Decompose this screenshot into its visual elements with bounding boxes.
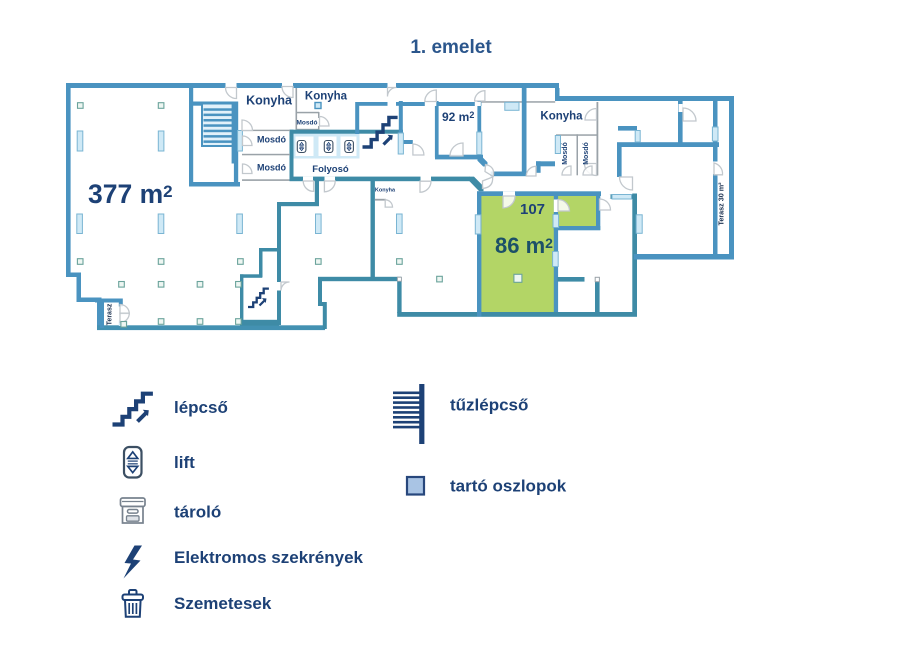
- svg-text:Elektromos szekrények: Elektromos szekrények: [174, 548, 364, 567]
- svg-text:1. emelet: 1. emelet: [410, 37, 492, 58]
- svg-text:tároló: tároló: [174, 503, 221, 522]
- svg-text:tűzlépcső: tűzlépcső: [450, 396, 528, 415]
- svg-text:Mosdó: Mosdó: [583, 142, 590, 165]
- svg-text:Konyha: Konyha: [246, 94, 293, 108]
- svg-text:377 m2: 377 m2: [88, 179, 173, 209]
- svg-text:Konyha: Konyha: [540, 111, 583, 123]
- svg-text:Terasz 30 m²: Terasz 30 m²: [717, 182, 726, 226]
- svg-text:Szemetesek: Szemetesek: [174, 594, 272, 613]
- svg-text:Konyha: Konyha: [375, 188, 396, 194]
- svg-text:Konyha: Konyha: [305, 91, 348, 103]
- svg-text:Terasz: Terasz: [107, 303, 114, 325]
- svg-text:86 m2: 86 m2: [495, 233, 553, 258]
- svg-text:lépcső: lépcső: [174, 398, 228, 417]
- svg-text:tartó oszlopok: tartó oszlopok: [450, 477, 567, 496]
- svg-text:Mosdó: Mosdó: [297, 120, 318, 127]
- svg-text:107: 107: [520, 201, 545, 218]
- svg-text:Mosdó: Mosdó: [562, 142, 569, 165]
- svg-text:Folyosó: Folyosó: [312, 164, 349, 175]
- svg-text:lift: lift: [174, 453, 195, 472]
- svg-text:Mosdó: Mosdó: [257, 163, 286, 173]
- svg-text:Mosdó: Mosdó: [257, 135, 286, 145]
